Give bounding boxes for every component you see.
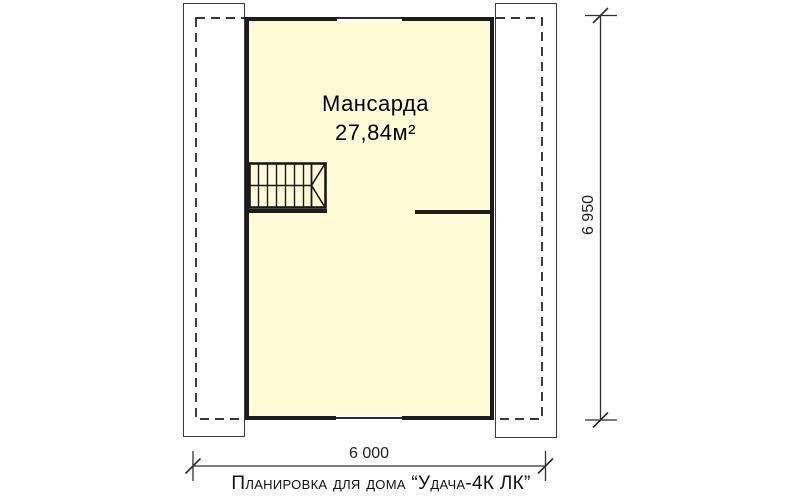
room-area-label: 27,84м² (251, 120, 500, 146)
eave-strip-left (183, 3, 245, 437)
dimension-horizontal-value: 6 000 (193, 445, 545, 463)
window-bottom-line (336, 417, 402, 419)
dimension-vertical-value: 6 950 (579, 180, 599, 250)
window-top-line (337, 17, 402, 19)
interior-wall-right-segment (415, 210, 491, 214)
room-name-label: Мансарда (251, 91, 500, 117)
dimension-tick (593, 8, 608, 23)
attic-room (245, 17, 494, 420)
floor-plan-drawing: Мансарда 27,84м² 6 950 6 000 Планировка … (0, 0, 795, 496)
eave-strip-right (495, 3, 557, 438)
interior-wall-left-segment (249, 209, 327, 213)
plan-caption: Планировка для дома “Удача-4К ЛК” (183, 473, 579, 495)
dimension-tick (593, 413, 608, 428)
